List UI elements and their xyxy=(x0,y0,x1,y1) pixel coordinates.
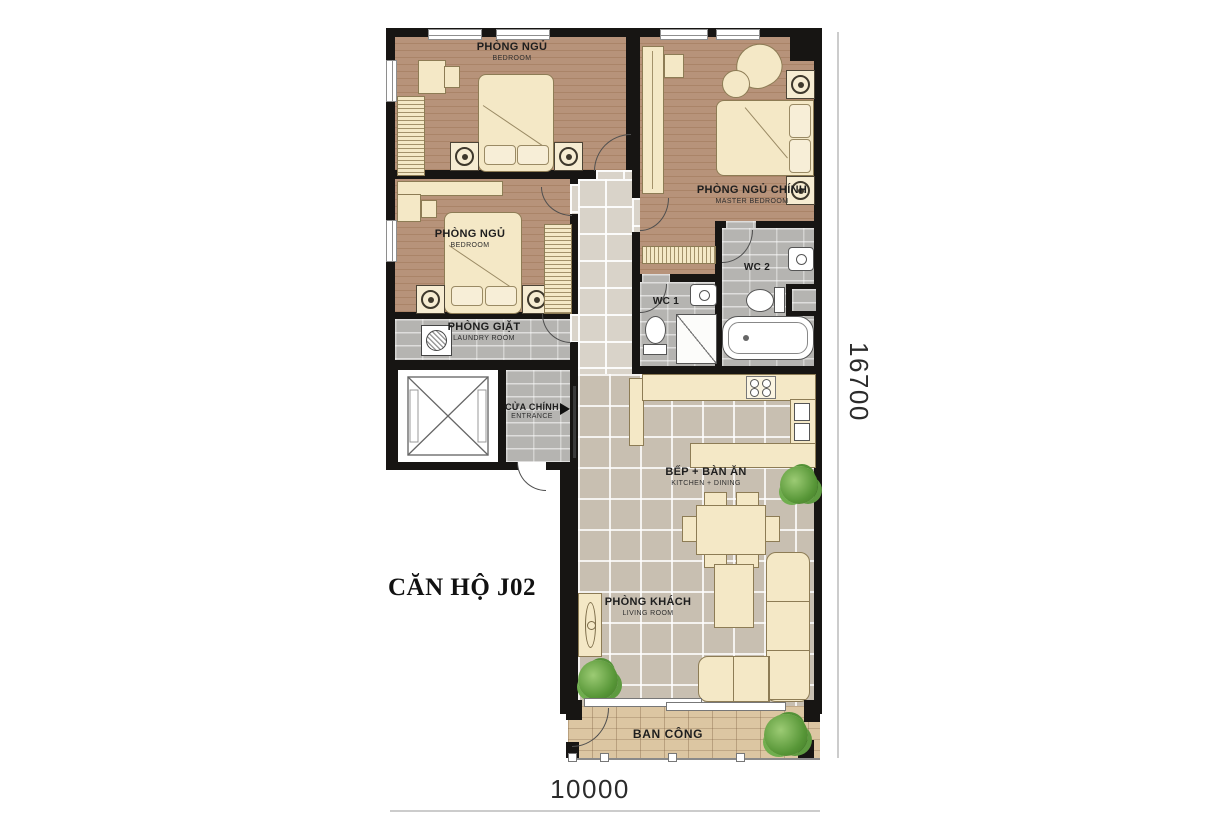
room-label-master: PHÒNG NGỦ CHÍNH MASTER BEDROOM xyxy=(697,184,807,207)
floor-hallway xyxy=(578,179,632,374)
room-name: CỬA CHÍNH xyxy=(505,402,559,413)
room-name: PHÒNG GIẶT xyxy=(448,321,521,335)
tv-icon xyxy=(585,602,596,648)
door-gap xyxy=(642,274,670,282)
stove-icon xyxy=(746,376,776,399)
bed xyxy=(478,74,554,172)
door-gap xyxy=(596,170,632,179)
room-label-wc1: WC 1 xyxy=(653,296,679,309)
room-name-en: ENTRANCE xyxy=(505,413,559,422)
door-gap xyxy=(726,221,756,228)
burner xyxy=(750,388,759,397)
wall-step-master xyxy=(790,37,814,61)
niche-shelf xyxy=(792,289,816,311)
room-label-living: PHÒNG KHÁCH LIVING ROOM xyxy=(605,596,691,619)
railing-post xyxy=(568,753,577,762)
room-name: WC 2 xyxy=(744,262,770,275)
kitchen-counter xyxy=(642,374,816,401)
blanket-fold xyxy=(745,107,788,158)
sofa xyxy=(766,552,810,702)
pillow xyxy=(485,286,517,306)
room-name: PHÒNG NGỦ xyxy=(477,41,548,55)
bed xyxy=(716,100,814,176)
burner xyxy=(762,388,771,397)
window xyxy=(716,29,760,40)
window xyxy=(496,29,550,40)
ceiling-spotlight-icon xyxy=(416,285,445,314)
blanket-fold xyxy=(449,245,511,287)
dimension-line-right xyxy=(837,32,839,758)
pillow xyxy=(484,145,516,165)
room-name-en: MASTER BEDROOM xyxy=(697,198,807,207)
wardrobe-line xyxy=(652,51,653,189)
room-name: PHÒNG KHÁCH xyxy=(605,596,691,610)
door-leaf xyxy=(573,386,576,458)
dining-table xyxy=(696,505,766,555)
sink-basin xyxy=(794,423,810,441)
chair xyxy=(421,200,437,218)
pillow xyxy=(789,139,811,173)
wardrobe xyxy=(397,96,425,176)
sliding-door xyxy=(666,702,786,711)
entrance-arrow-icon xyxy=(560,403,570,415)
pillow xyxy=(789,104,811,138)
room-name: PHÒNG NGỦ CHÍNH xyxy=(697,184,807,198)
dimension-value-right: 16700 xyxy=(843,342,874,422)
room-label-kitchen: BẾP + BÀN ĂN KITCHEN + DINING xyxy=(665,466,746,489)
railing-post xyxy=(736,753,745,762)
shower-icon xyxy=(676,314,717,364)
toilet-icon xyxy=(643,316,667,356)
room-name-en: BEDROOM xyxy=(477,55,548,64)
dimension-value-bottom: 10000 xyxy=(550,774,630,805)
plant-icon xyxy=(780,466,818,504)
burner xyxy=(762,379,771,388)
toilet-tank xyxy=(643,344,667,355)
ceiling-spotlight-icon xyxy=(554,142,583,171)
apartment-title: CĂN HỘ J02 xyxy=(388,574,536,602)
window xyxy=(386,220,397,262)
plant-icon xyxy=(578,660,618,700)
toilet-bowl xyxy=(645,316,666,344)
room-label-laundry: PHÒNG GIẶT LAUNDRY ROOM xyxy=(448,321,521,344)
side-table xyxy=(722,70,750,98)
wardrobe xyxy=(544,224,572,314)
ceiling-spotlight-icon xyxy=(450,142,479,171)
chair xyxy=(444,66,460,88)
coffee-table xyxy=(714,564,754,628)
desk xyxy=(418,60,446,94)
sink-icon xyxy=(788,247,814,271)
room-label-wc2: WC 2 xyxy=(744,262,770,275)
floor-mat xyxy=(642,246,716,264)
pillow xyxy=(451,286,483,306)
elevator-icon xyxy=(398,370,498,462)
dimension-line-bottom xyxy=(390,810,820,812)
window xyxy=(386,60,397,102)
railing-post xyxy=(668,753,677,762)
room-name-en: BEDROOM xyxy=(435,242,506,251)
plant-icon xyxy=(764,714,808,756)
door-gap xyxy=(632,198,640,232)
room-name: BẾP + BÀN ĂN xyxy=(665,466,746,480)
window xyxy=(660,29,708,40)
stool xyxy=(664,54,684,78)
desk xyxy=(397,194,421,222)
door-arc xyxy=(517,462,546,491)
room-label-balcony: BAN CÔNG xyxy=(633,727,703,742)
blanket-fold xyxy=(483,105,543,146)
room-name-en: LIVING ROOM xyxy=(605,610,691,619)
room-name: WC 1 xyxy=(653,296,679,309)
pillow xyxy=(517,145,549,165)
sink-basin xyxy=(794,403,810,421)
burner xyxy=(750,379,759,388)
railing-post xyxy=(600,753,609,762)
toilet-bowl xyxy=(746,289,774,312)
wardrobe xyxy=(642,46,664,194)
room-label-entrance: CỬA CHÍNH ENTRANCE xyxy=(505,402,559,422)
door-gap xyxy=(570,314,578,342)
toilet-icon xyxy=(746,287,786,313)
kitchen-island xyxy=(690,443,816,468)
ceiling-spotlight-icon xyxy=(786,70,815,99)
toilet-tank xyxy=(774,287,785,313)
balcony-wall-block xyxy=(804,700,820,722)
room-label-bedroom2: PHÒNG NGỦ BEDROOM xyxy=(435,228,506,251)
room-name-en: LAUNDRY ROOM xyxy=(448,335,521,344)
bathtub-icon xyxy=(722,316,814,360)
room-name: PHÒNG NGỦ xyxy=(435,228,506,242)
window xyxy=(428,29,482,40)
room-name: BAN CÔNG xyxy=(633,727,703,742)
room-label-bedroom1: PHÒNG NGỦ BEDROOM xyxy=(477,41,548,64)
sink-icon xyxy=(690,284,717,306)
floor-plan: PHÒNG NGỦ BEDROOM PHÒNG NGỦ BEDROOM PHÒN… xyxy=(0,0,1210,832)
room-name-en: KITCHEN + DINING xyxy=(665,480,746,489)
sofa xyxy=(698,656,770,702)
kitchen-sink-icon xyxy=(792,401,812,443)
